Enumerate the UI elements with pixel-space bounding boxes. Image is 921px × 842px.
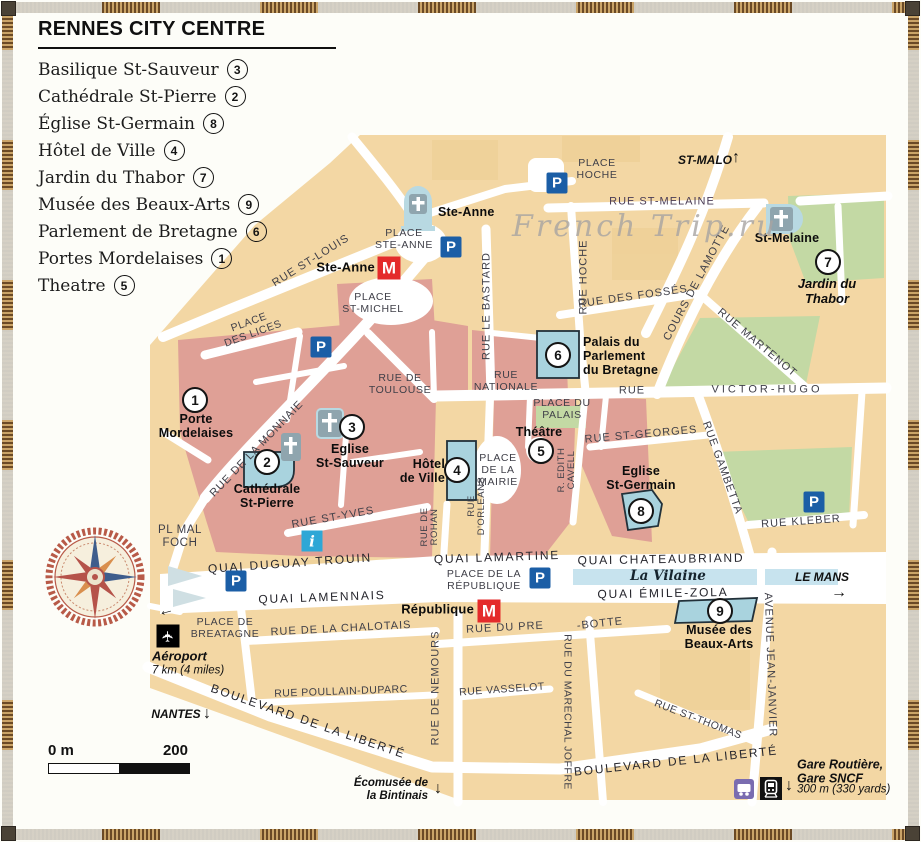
arrow-gare-icon: ↓ [785,777,793,795]
airplane-glyph: ✈ [159,630,177,643]
street-rue-le-bastard: RUE LE BASTARD [481,252,494,360]
frame-left [2,2,13,840]
place-ste-anne: PLACE STE-ANNE [375,227,433,251]
legend-item: Musée des Beaux-Arts9 [38,194,342,215]
legend-item-number: 5 [114,275,135,296]
legend-item-label: Parlement de Bretagne [38,222,238,242]
arrow-le-mans-icon: → [831,584,847,602]
street-quai-emile-zola: QUAI ÉMILE-ZOLA [597,586,728,602]
legend-item: Parlement de Bretagne6 [38,221,342,242]
parking-icon: P [441,237,462,258]
legend-item: Theatre5 [38,275,342,296]
arrow-ecomusee-icon: ↓ [434,780,442,798]
legend-item-number: 9 [238,194,259,215]
cathedrale-church-icon [281,433,301,461]
direction-gare-distance: 300 m (330 yards) [797,783,890,796]
label-musee-beaux-arts: Musée des Beaux-Arts [685,623,754,651]
legend-panel: RENNES CITY CENTRE Basilique St-Sauveur3… [30,18,342,302]
direction-aeroport: Aéroport [152,650,207,665]
scale-start: 0 m [48,742,74,759]
frame-corner [905,1,920,16]
legend-item: Hôtel de Ville4 [38,140,342,161]
rennes-city-map-page: { "legend": { "title": "RENNES CITY CENT… [0,0,921,842]
street-rue-hoche: RUE HOCHE [578,239,591,314]
street-rue-nationale: RUE NATIONALE [474,369,538,393]
legend-item: Jardin du Thabor7 [38,167,342,188]
marker-thabor: 7 [815,249,841,275]
label-cathedrale-st-pierre: Cathédrale St-Pierre [234,482,301,510]
parking-icon: P [311,337,332,358]
place-st-michel: PLACE ST-MICHEL [342,291,403,315]
legend-item-number: 7 [193,167,214,188]
scale-bar: 0 m 200 [48,742,198,774]
arrow-st-malo-icon: ↑ [732,149,740,167]
legend-item-label: Portes Mordelaises [38,249,203,269]
parking-icon: P [530,568,551,589]
direction-nantes: NANTES [151,708,200,722]
place-hoche: PLACE HOCHE [577,157,618,181]
bus-icon-art [734,779,754,799]
label-eglise-st-germain: Eglise St-Germain [606,464,675,492]
place-du-palais: PLACE DU PALAIS [533,397,590,421]
legend-item-number: 4 [164,140,185,161]
info-icon: i [302,531,323,552]
legend-item-label: Cathédrale St-Pierre [38,87,217,107]
label-hotel-de-ville: Hôtel de Ville [400,457,445,485]
arrow-nantes-icon: ↓ [203,705,211,723]
label-metro-republique: République [401,603,474,618]
street-rue-st-melaine: RUE ST-MELAINE [609,196,715,209]
street-quai-chateaubriand: QUAI CHATEAUBRIAND [577,552,744,569]
frame-bottom [2,829,919,840]
marker-theatre: 5 [528,438,554,464]
street-rue-de-toulouse: RUE DE TOULOUSE [369,372,431,396]
legend-item-label: Jardin du Thabor [38,168,185,188]
label-la-vilaine: La Vilaine [630,569,706,585]
legend-item-number: 8 [203,113,224,134]
marker-st-germain: 8 [628,498,654,524]
street-rue-du-marechal-joffre: RUE DU MARECHAL JOFFRE [561,634,572,790]
legend-item-number: 6 [246,221,267,242]
street-edith-cavell: R. EDITH CAVELL [557,448,577,493]
label-palais-parlement: Palais du Parlement du Bretagne [583,335,658,377]
label-eglise-st-sauveur: Eglise St-Sauveur [316,442,384,470]
parking-icon: P [804,492,825,513]
frame-corner [1,826,16,841]
place-de-la-republique: PLACE DE LA RÉPUBLIQUE [447,568,521,592]
metro-icon: M [378,257,401,280]
train-icon-art [760,777,782,800]
legend-item: Basilique St-Sauveur3 [38,59,342,80]
legend-item-number: 2 [225,86,246,107]
legend-item-number: 1 [211,248,232,269]
scale-end: 200 [163,742,188,759]
frame-top [2,2,919,13]
map-title: RENNES CITY CENTRE [38,18,342,41]
compass-rose [49,531,141,623]
marker-hotel-de-ville: 4 [444,457,470,483]
airport-icon: ✈ [157,625,180,648]
legend-item-label: Hôtel de Ville [38,141,156,161]
direction-le-mans: LE MANS [795,571,849,585]
direction-st-malo: ST-MALO [678,154,732,168]
label-theatre: Théâtre [516,425,563,439]
label-ste-anne-church: Ste-Anne [438,205,494,219]
legend-item-label: Theatre [38,276,106,296]
label-jardin-du-thabor: Jardin du Thabor [798,277,857,307]
parking-icon: P [547,173,568,194]
street-rue-de-nemours: RUE DE NEMOURS [430,631,443,746]
legend-item: Église St-Germain8 [38,113,342,134]
parking-icon: P [226,571,247,592]
direction-ecomusee: Écomusée de la Bintinais [354,777,428,803]
marker-parlement: 6 [545,342,571,368]
label-porte-mordelaises: Porte Mordelaises [159,412,233,440]
watermark: French Trip.ru [512,210,778,245]
marker-musee: 9 [707,598,733,624]
place-de-bretagne: PLACE DE BREATAGNE [191,616,260,640]
place-de-la-mairie: PLACE DE LA MAIRIE [478,452,518,488]
legend-item: Cathédrale St-Pierre2 [38,86,342,107]
legend-divider [38,47,336,49]
metro-icon: M [478,600,501,623]
direction-gare: Gare Routière, Gare SNCF [797,758,883,787]
frame-right [908,2,919,840]
street-victor-hugo: VICTOR-HUGO [711,384,822,397]
legend-item-label: Musée des Beaux-Arts [38,195,230,215]
street-rue-de-rohan: RUE DE ROHAN [420,508,440,547]
frame-corner [905,826,920,841]
frame-corner [1,1,16,16]
direction-aeroport-distance: 7 km (4 miles) [152,664,224,677]
marker-st-sauveur: 3 [339,414,365,440]
legend-item-label: Église St-Germain [38,114,195,134]
marker-cathedrale: 2 [254,449,280,475]
place-mal-foch: PL MAL FOCH [158,524,202,550]
scale-bar-graphic [48,763,190,774]
street-rue-prefix: RUE [619,385,645,398]
marker-porte-mordelaises: 1 [182,387,208,413]
legend-item: Portes Mordelaises1 [38,248,342,269]
legend-item-label: Basilique St-Sauveur [38,60,219,80]
legend-item-number: 3 [227,59,248,80]
